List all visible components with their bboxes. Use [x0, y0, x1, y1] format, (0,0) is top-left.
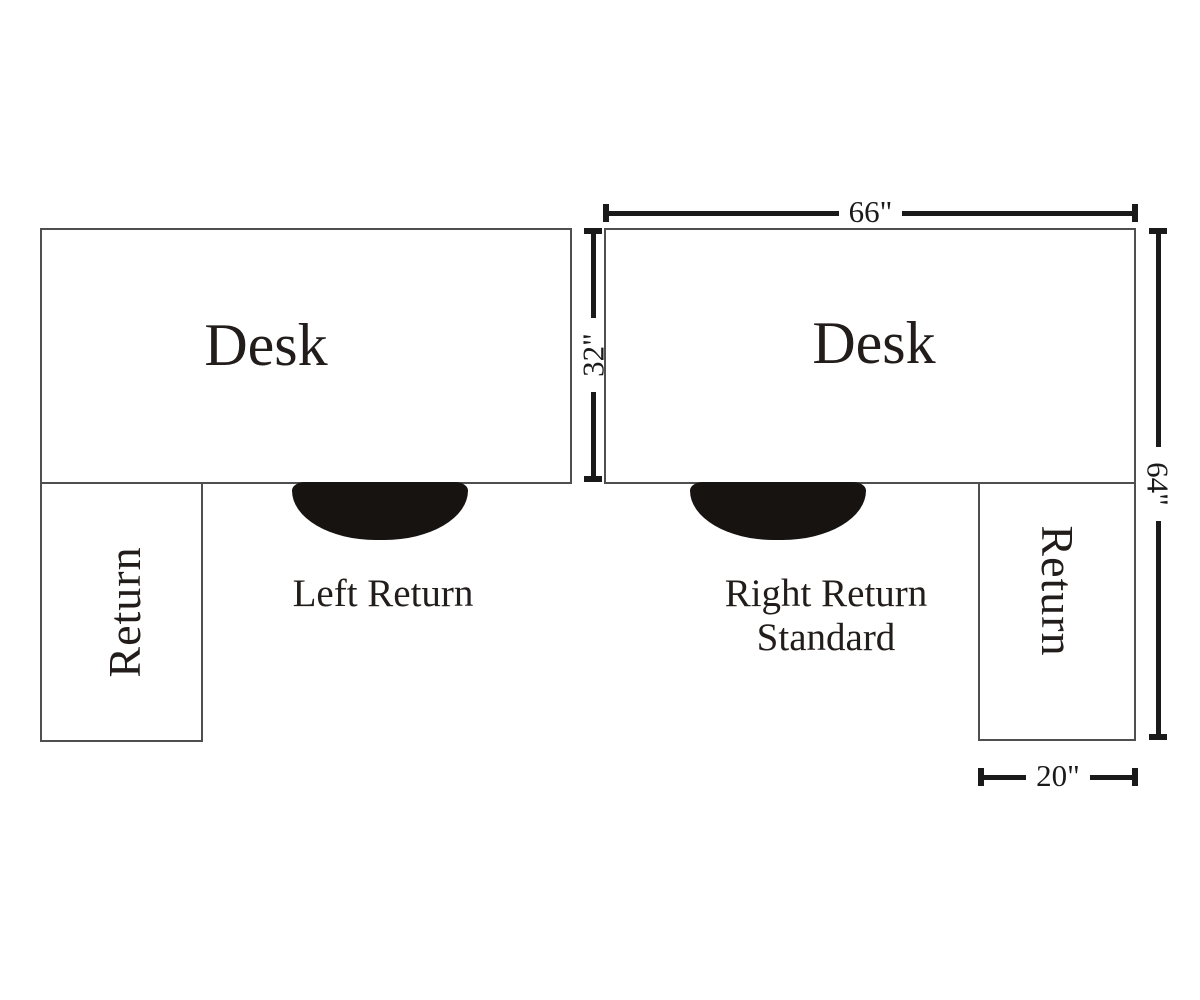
right-return-surface: Return	[978, 484, 1136, 741]
desk-layout-diagram: Desk Return Left Return Desk Return Righ…	[0, 0, 1200, 1000]
right-desk-label: Desk	[812, 313, 935, 373]
right-chair-icon	[690, 482, 866, 540]
dim-tick	[1132, 204, 1138, 222]
dim-line-segment	[1156, 234, 1161, 447]
dimension-desk-depth-value: 32"	[584, 324, 602, 386]
dimension-desk-width-value: 66"	[849, 196, 893, 227]
right-return-label: Return	[1034, 525, 1080, 656]
dimension-return-width-value: 20"	[1036, 760, 1080, 791]
dimension-total-depth-text: 64"	[1143, 462, 1174, 506]
left-return-label: Return	[102, 546, 148, 677]
right-caption-line1: Right Return	[725, 572, 928, 616]
dim-line-segment	[591, 234, 596, 318]
dimension-return-width: 20"	[978, 768, 1138, 786]
dim-line-segment	[1156, 521, 1161, 734]
left-return-surface: Return	[40, 484, 203, 742]
dimension-desk-depth: 32"	[584, 228, 602, 482]
dim-line-segment	[984, 775, 1026, 780]
left-config-caption: Left Return	[293, 572, 474, 616]
dim-tick	[584, 476, 602, 482]
left-desk-surface: Desk	[40, 228, 572, 484]
dim-line-segment	[591, 392, 596, 476]
right-desk-surface: Desk	[604, 228, 1136, 484]
dim-line-segment	[609, 211, 839, 216]
left-chair-icon	[292, 482, 468, 540]
dim-line-segment	[1090, 775, 1132, 780]
dimension-total-depth-value: 64"	[1149, 453, 1167, 515]
right-caption-line2: Standard	[725, 616, 928, 660]
dimension-desk-width: 66"	[603, 204, 1138, 222]
dimension-total-depth: 64"	[1149, 228, 1167, 740]
dim-tick	[1132, 768, 1138, 786]
right-config-caption: Right Return Standard	[725, 572, 928, 660]
left-desk-label: Desk	[204, 315, 327, 375]
dim-line-segment	[902, 211, 1132, 216]
dim-tick	[1149, 734, 1167, 740]
dimension-desk-depth-text: 32"	[578, 333, 609, 377]
